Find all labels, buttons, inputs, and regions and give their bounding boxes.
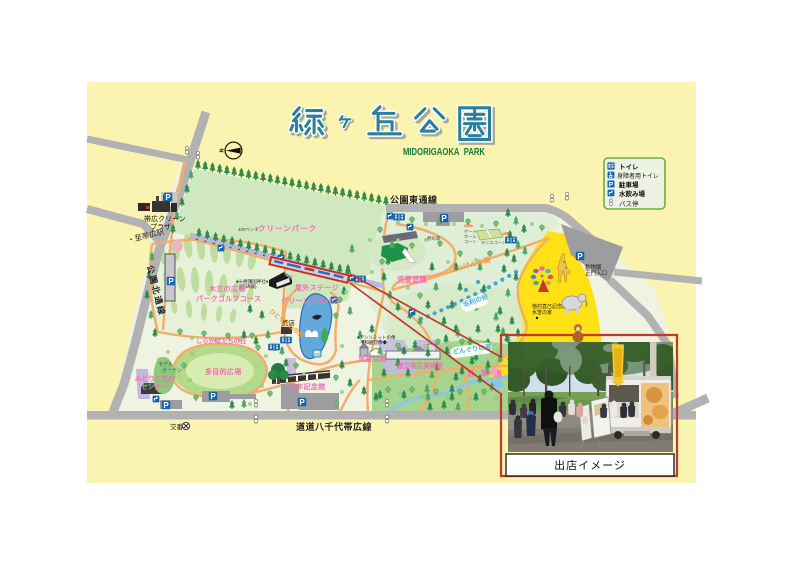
svg-text:公園東通線: 公園東通線 xyxy=(390,194,438,205)
svg-text:出店イメージ: 出店イメージ xyxy=(554,458,626,472)
svg-text:MIDORIGAOKA PARK: MIDORIGAOKA PARK xyxy=(403,147,486,158)
svg-text:多目的広場: 多目的広場 xyxy=(205,367,242,376)
svg-text:身障者用トイレ: 身障者用トイレ xyxy=(617,172,659,180)
svg-text:百年記念館: 百年記念館 xyxy=(289,382,326,391)
svg-text:モデル: モデル xyxy=(158,361,173,368)
svg-text:道道八千代帯広線: 道道八千代帯広線 xyxy=(296,421,372,432)
svg-text:氷雪の家: 氷雪の家 xyxy=(532,309,552,316)
svg-text:バス停: バス停 xyxy=(619,199,639,208)
svg-text:グリーンステージ: グリーンステージ xyxy=(281,296,339,305)
svg-text:プラザ: プラザ xyxy=(150,223,171,231)
svg-text:しらかばたちの丘: しらかばたちの丘 xyxy=(196,336,247,345)
svg-text:クリーンパーク: クリーンパーク xyxy=(258,223,317,233)
svg-text:平和観音像◆: 平和観音像◆ xyxy=(360,339,387,346)
svg-text:正門入口: 正門入口 xyxy=(585,270,607,277)
svg-text:帯広クリーン: 帯広クリーン xyxy=(144,214,186,223)
svg-text:パークゴルフコース: パークゴルフコース xyxy=(196,294,261,303)
svg-text:木立の広場: 木立の広場 xyxy=(208,284,246,293)
svg-text:駐車場: 駐車場 xyxy=(619,180,639,189)
svg-text:動物園: 動物園 xyxy=(585,263,602,271)
svg-text:児童会館: 児童会館 xyxy=(357,354,387,363)
svg-text:センター: センター xyxy=(141,382,168,391)
svg-text:屋外ステージ: 屋外ステージ xyxy=(295,283,339,292)
svg-text:みどりと花の: みどりと花の xyxy=(135,374,175,383)
svg-text:水飲み場: 水飲み場 xyxy=(619,189,646,198)
svg-text:トイレ: トイレ xyxy=(619,163,639,171)
svg-text:児童遊園: 児童遊園 xyxy=(396,275,427,284)
svg-text:400ベンチ: 400ベンチ xyxy=(238,227,260,232)
svg-text:N: N xyxy=(220,149,226,153)
svg-text:憩の家: 憩の家 xyxy=(427,235,441,241)
svg-text:ガーデン: ガーデン xyxy=(162,367,182,374)
svg-text:道立帯広美術館: 道立帯広美術館 xyxy=(397,361,444,370)
svg-text:コート: コート xyxy=(464,239,477,244)
svg-text:交番: 交番 xyxy=(170,422,184,431)
